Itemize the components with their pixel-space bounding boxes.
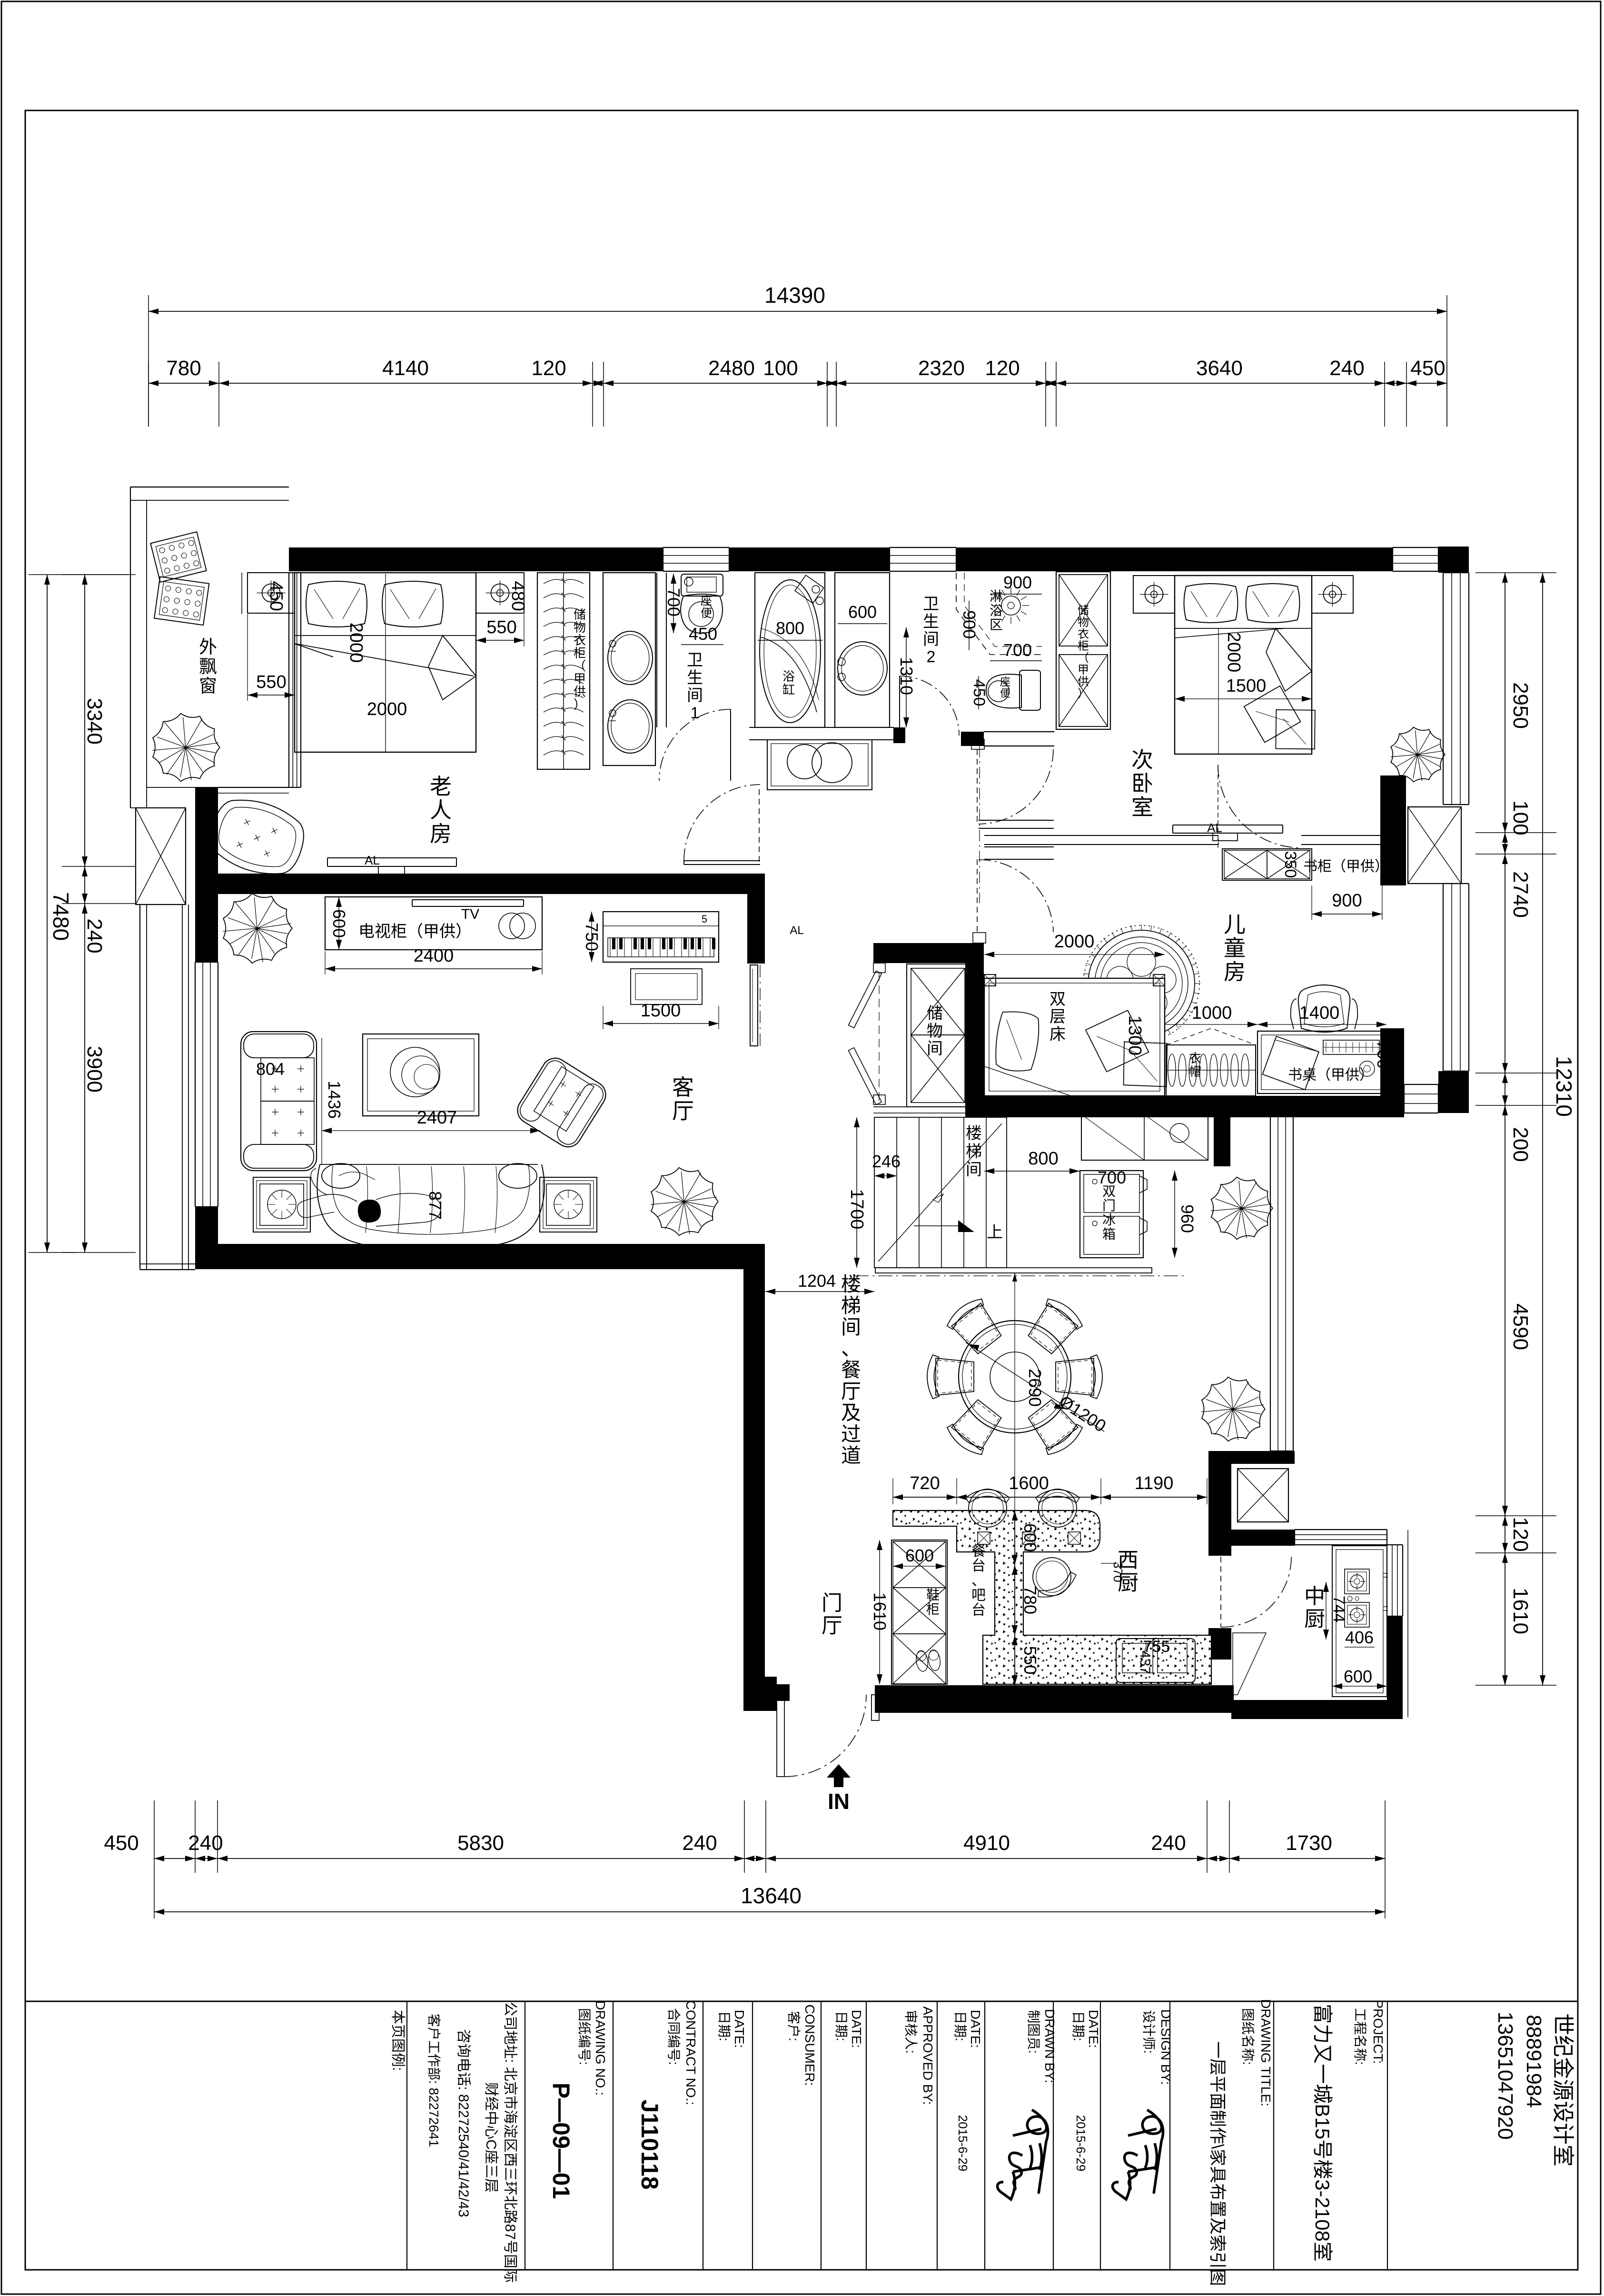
svg-text:800: 800	[1028, 1149, 1058, 1169]
svg-text:书桌（甲供）: 书桌（甲供）	[1288, 1067, 1374, 1083]
svg-text:350: 350	[1281, 851, 1299, 878]
svg-text:次: 次	[1131, 747, 1153, 772]
svg-text:客户工作部: 82272641: 客户工作部: 82272641	[426, 2014, 441, 2147]
svg-text:及: 及	[841, 1401, 861, 1424]
svg-text:物: 物	[1078, 616, 1089, 629]
svg-text:877: 877	[426, 1191, 445, 1220]
svg-text:DATE:: DATE:	[1086, 2010, 1101, 2048]
svg-text:帽: 帽	[1189, 1064, 1201, 1079]
svg-text:DATE:: DATE:	[849, 2010, 864, 2048]
svg-text:700: 700	[1003, 640, 1032, 660]
svg-text:2: 2	[927, 648, 936, 666]
svg-text:卫: 卫	[923, 595, 939, 613]
svg-text:、: 、	[971, 1573, 986, 1589]
svg-text:间: 间	[923, 630, 939, 648]
svg-text:图纸名称:: 图纸名称:	[1240, 2008, 1255, 2065]
svg-text:（: （	[574, 659, 586, 673]
svg-text:1436: 1436	[325, 1081, 344, 1119]
svg-text:700: 700	[664, 588, 683, 616]
svg-text:柜: 柜	[1078, 640, 1089, 653]
svg-text:2400: 2400	[414, 946, 454, 966]
svg-text:甲: 甲	[1078, 664, 1089, 676]
svg-text:区: 区	[990, 617, 1003, 632]
svg-text:座: 座	[1000, 676, 1010, 688]
svg-text:审核人:: 审核人:	[903, 2010, 918, 2054]
svg-text:卧: 卧	[1131, 771, 1153, 796]
svg-text:240: 240	[83, 918, 106, 953]
svg-text:物: 物	[574, 620, 586, 635]
svg-text:800: 800	[776, 618, 804, 638]
svg-text:700: 700	[1374, 1040, 1393, 1069]
svg-text:1610: 1610	[870, 1592, 890, 1630]
svg-text:门: 门	[822, 1591, 842, 1615]
svg-text:过: 过	[841, 1423, 861, 1445]
svg-text:5: 5	[702, 913, 707, 925]
svg-text:720: 720	[910, 1473, 940, 1493]
svg-text:飘: 飘	[199, 657, 217, 677]
svg-text:240: 240	[1151, 1831, 1186, 1855]
svg-text:储: 储	[1078, 604, 1089, 617]
svg-text:卫: 卫	[687, 651, 703, 669]
svg-text:生: 生	[923, 613, 939, 631]
svg-text:550: 550	[1020, 1646, 1040, 1674]
svg-text:室: 室	[1131, 795, 1153, 819]
svg-text:财经中心C座三层: 财经中心C座三层	[483, 2082, 499, 2193]
svg-text:100: 100	[763, 357, 798, 380]
svg-text:4590: 4590	[1509, 1303, 1532, 1350]
svg-text:鞋: 鞋	[926, 1588, 940, 1602]
svg-text:2015-6-29: 2015-6-29	[956, 2115, 970, 2172]
svg-text:1310: 1310	[897, 657, 916, 695]
svg-text:上: 上	[987, 1223, 1003, 1242]
svg-text:餐: 餐	[971, 1543, 986, 1559]
svg-text:储: 储	[574, 607, 586, 622]
svg-text:1600: 1600	[1009, 1473, 1049, 1493]
svg-text:120: 120	[531, 357, 566, 380]
svg-text:间: 间	[966, 1161, 982, 1179]
svg-text:240: 240	[188, 1831, 223, 1855]
svg-text:老: 老	[430, 774, 452, 799]
svg-text:2690: 2690	[1025, 1369, 1045, 1407]
svg-text:衣: 衣	[1189, 1051, 1201, 1065]
svg-text:楼: 楼	[841, 1273, 861, 1295]
svg-text:道: 道	[841, 1444, 861, 1467]
svg-text:日期:: 日期:	[717, 2011, 732, 2041]
svg-text:AL: AL	[790, 924, 803, 937]
svg-text:550: 550	[486, 617, 516, 637]
svg-text:900: 900	[960, 610, 979, 639]
svg-text:合同编号:: 合同编号:	[666, 2008, 681, 2065]
svg-text:座: 座	[701, 595, 712, 607]
svg-text:双: 双	[1050, 990, 1066, 1008]
svg-text:3640: 3640	[1196, 357, 1243, 380]
svg-text:缸: 缸	[782, 683, 795, 697]
svg-text:550: 550	[256, 672, 286, 692]
svg-text:744: 744	[1330, 1596, 1348, 1623]
svg-text:厅: 厅	[841, 1380, 861, 1402]
svg-text:600: 600	[329, 909, 349, 938]
svg-text:甲: 甲	[574, 672, 586, 686]
svg-text:1700: 1700	[847, 1189, 867, 1230]
svg-text:900: 900	[1003, 573, 1032, 592]
svg-text:120: 120	[985, 357, 1020, 380]
svg-text:AL: AL	[1207, 821, 1222, 835]
svg-text:）: ）	[1078, 687, 1089, 700]
svg-text:1: 1	[691, 704, 700, 722]
svg-text:4140: 4140	[382, 357, 429, 380]
svg-text:1610: 1610	[1509, 1588, 1532, 1634]
svg-text:3340: 3340	[83, 698, 106, 745]
svg-text:厨: 厨	[1118, 1571, 1139, 1595]
svg-text:便: 便	[1000, 687, 1010, 699]
svg-text:供: 供	[574, 685, 586, 699]
svg-text:DRAWING TITLE:: DRAWING TITLE:	[1258, 1999, 1273, 2107]
svg-text:DRAWN BY:: DRAWN BY:	[1042, 2009, 1057, 2083]
svg-text:设计师:: 设计师:	[1141, 2010, 1156, 2054]
svg-text:1400: 1400	[1299, 1003, 1340, 1023]
svg-text:780: 780	[1020, 1586, 1040, 1614]
svg-text:童: 童	[1224, 936, 1246, 961]
svg-text:1190: 1190	[1135, 1473, 1174, 1493]
svg-text:厅: 厅	[672, 1099, 694, 1123]
svg-text:（: （	[1078, 652, 1089, 665]
svg-text:2000: 2000	[346, 623, 366, 663]
svg-text:120: 120	[1509, 1517, 1532, 1551]
svg-text:450: 450	[689, 624, 717, 644]
svg-text:DRAWING NO.:: DRAWING NO.:	[593, 2000, 608, 2096]
svg-text:冰: 冰	[1102, 1213, 1116, 1227]
svg-text:700: 700	[1098, 1168, 1126, 1187]
svg-text:外: 外	[199, 637, 217, 657]
svg-text:750: 750	[582, 923, 602, 951]
svg-text:2000: 2000	[1224, 632, 1244, 673]
svg-text:生: 生	[687, 669, 703, 687]
svg-text:门: 门	[1102, 1198, 1116, 1213]
svg-text:台: 台	[971, 1558, 986, 1574]
svg-text:APPROVED BY:: APPROVED BY:	[921, 2007, 935, 2105]
svg-text:2950: 2950	[1509, 682, 1532, 729]
svg-text:间: 间	[687, 686, 703, 705]
svg-text:450: 450	[970, 679, 988, 706]
svg-text:厨: 厨	[1304, 1608, 1325, 1631]
svg-text:DATE:: DATE:	[732, 2010, 747, 2048]
svg-text:一层平面制作\家具布置及索引图: 一层平面制作\家具布置及索引图	[1208, 2041, 1228, 2286]
svg-text:世纪金源设计室: 世纪金源设计室	[1551, 2013, 1575, 2167]
svg-text:2000: 2000	[1054, 932, 1095, 952]
svg-text:406: 406	[1345, 1628, 1374, 1647]
svg-text:供: 供	[1078, 676, 1089, 688]
svg-text:AL: AL	[365, 853, 380, 867]
svg-text:P—09—01: P—09—01	[548, 2083, 574, 2199]
svg-text:日期:: 日期:	[1071, 2011, 1086, 2041]
svg-text:吧: 吧	[971, 1588, 986, 1603]
svg-text:4910: 4910	[963, 1831, 1010, 1855]
svg-text:柜: 柜	[926, 1602, 940, 1617]
svg-text:1300: 1300	[1125, 1015, 1145, 1056]
svg-text:2480: 2480	[708, 357, 755, 380]
svg-text:浴: 浴	[782, 669, 795, 684]
svg-text:1204: 1204	[798, 1271, 836, 1291]
svg-text:、: 、	[841, 1337, 861, 1360]
svg-text:工程名称:: 工程名称:	[1353, 2008, 1367, 2065]
svg-text:14390: 14390	[764, 283, 825, 308]
svg-text:450: 450	[266, 581, 286, 611]
svg-text:780: 780	[166, 357, 201, 380]
svg-text:2320: 2320	[918, 357, 965, 380]
svg-text:DESIGN BY:: DESIGN BY:	[1158, 2009, 1173, 2085]
svg-text:梯: 梯	[966, 1143, 982, 1161]
svg-text:儿: 儿	[1224, 912, 1246, 937]
svg-text:便: 便	[701, 607, 712, 620]
svg-text:J110118: J110118	[636, 2099, 663, 2189]
svg-text:2015-6-29: 2015-6-29	[1074, 2115, 1088, 2172]
svg-text:房: 房	[430, 821, 452, 846]
svg-text:衣: 衣	[1078, 628, 1089, 641]
svg-text:1730: 1730	[1286, 1831, 1332, 1855]
svg-text:图纸编号:: 图纸编号:	[577, 2008, 592, 2065]
svg-text:衣: 衣	[574, 633, 586, 647]
svg-text:IN: IN	[828, 1789, 850, 1814]
svg-text:600: 600	[1344, 1667, 1372, 1686]
svg-text:柜: 柜	[574, 646, 586, 660]
svg-text:1500: 1500	[1226, 676, 1267, 696]
svg-text:层: 层	[1050, 1008, 1066, 1026]
svg-text:人: 人	[430, 798, 452, 823]
svg-text:CONTRACT NO.:: CONTRACT NO.:	[683, 2000, 698, 2105]
svg-text:台: 台	[971, 1602, 986, 1618]
svg-text:12310: 12310	[1552, 1056, 1576, 1117]
svg-text:本页图例:: 本页图例:	[390, 2010, 406, 2071]
svg-text:5830: 5830	[457, 1831, 504, 1855]
svg-text:房: 房	[1224, 959, 1246, 984]
svg-text:）: ）	[574, 697, 586, 712]
svg-text:450: 450	[1410, 357, 1445, 380]
svg-text:物: 物	[927, 1022, 943, 1040]
svg-text:梯: 梯	[841, 1294, 861, 1317]
svg-text:窗: 窗	[199, 676, 217, 696]
svg-text:437: 437	[1137, 1650, 1153, 1674]
svg-text:100: 100	[1509, 800, 1532, 835]
svg-text:电视柜（甲供）: 电视柜（甲供）	[358, 923, 472, 941]
svg-text:3900: 3900	[83, 1046, 106, 1093]
svg-text:600: 600	[1020, 1523, 1040, 1552]
svg-text:箱: 箱	[1102, 1227, 1116, 1242]
svg-text:13640: 13640	[741, 1883, 802, 1908]
svg-text:浴: 浴	[990, 603, 1003, 618]
svg-text:餐: 餐	[841, 1359, 861, 1381]
svg-text:2407: 2407	[417, 1108, 457, 1128]
svg-text:1000: 1000	[1192, 1003, 1232, 1023]
svg-text:床: 床	[1050, 1025, 1066, 1044]
svg-text:TV: TV	[461, 906, 479, 922]
svg-text:书柜（甲供）: 书柜（甲供）	[1303, 859, 1389, 875]
svg-text:PROJECT:: PROJECT:	[1371, 1999, 1386, 2064]
svg-text:2000: 2000	[367, 699, 407, 719]
svg-text:富力又一城B15号楼3-2108室: 富力又一城B15号楼3-2108室	[1311, 2004, 1334, 2262]
svg-text:日期:: 日期:	[834, 2011, 849, 2041]
svg-text:240: 240	[1329, 357, 1364, 380]
svg-text:日期:: 日期:	[953, 2011, 968, 2041]
svg-text:间: 间	[927, 1040, 943, 1058]
svg-text:客户:: 客户:	[786, 2011, 801, 2041]
svg-text:淋: 淋	[990, 589, 1003, 604]
svg-text:储: 储	[927, 1004, 943, 1023]
svg-text:246: 246	[872, 1152, 901, 1171]
svg-text:900: 900	[1332, 891, 1362, 911]
svg-text:公司地址: 北京市海淀区西三环北路87号国际: 公司地址: 北京市海淀区西三环北路87号国际	[502, 2002, 518, 2283]
svg-text:13651047920: 13651047920	[1494, 2011, 1517, 2139]
svg-text:960: 960	[1178, 1204, 1197, 1233]
svg-text:480: 480	[508, 581, 528, 611]
svg-text:厅: 厅	[822, 1614, 842, 1638]
svg-text:中: 中	[1304, 1585, 1325, 1608]
svg-text:600: 600	[848, 602, 877, 622]
svg-text:450: 450	[104, 1831, 139, 1855]
svg-text:楼: 楼	[966, 1124, 982, 1143]
svg-text:间: 间	[841, 1316, 861, 1338]
svg-text:88891984: 88891984	[1522, 2015, 1545, 2108]
svg-text:CONSUMER:: CONSUMER:	[802, 2004, 817, 2086]
svg-text:200: 200	[1509, 1127, 1532, 1162]
svg-text:DATE:: DATE:	[968, 2010, 983, 2048]
svg-text:制图员:: 制图员:	[1026, 2010, 1041, 2054]
svg-text:西: 西	[1118, 1549, 1139, 1572]
svg-text:咨询电话: 82272540/41/42/43: 咨询电话: 82272540/41/42/43	[455, 2029, 471, 2217]
svg-text:600: 600	[905, 1546, 934, 1565]
svg-text:240: 240	[682, 1831, 717, 1855]
svg-text:1500: 1500	[641, 1001, 681, 1021]
svg-text:客: 客	[672, 1075, 694, 1100]
svg-text:2740: 2740	[1509, 871, 1532, 918]
svg-text:7480: 7480	[49, 892, 73, 941]
svg-text:804: 804	[256, 1059, 285, 1079]
